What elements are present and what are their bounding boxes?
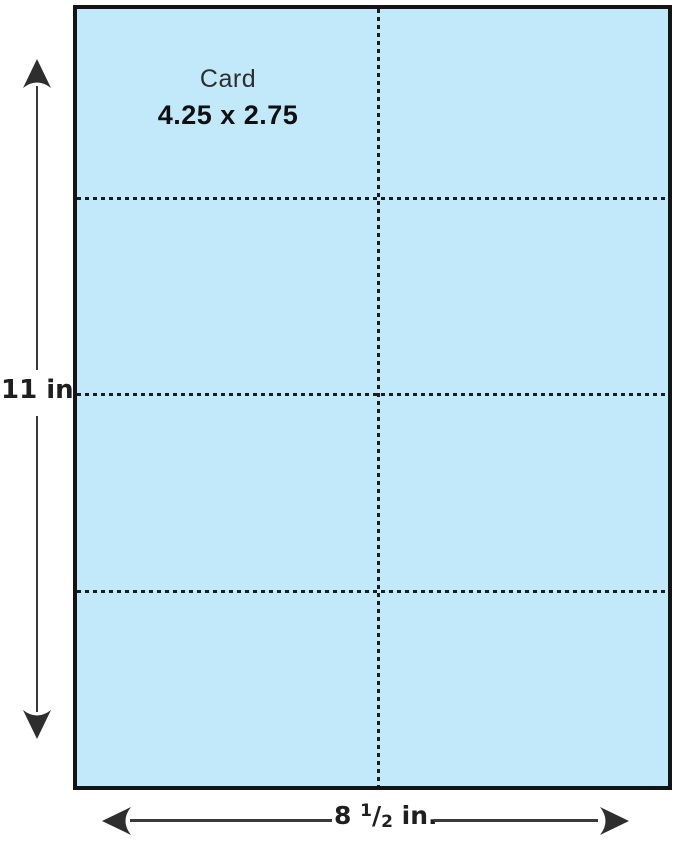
paper-sheet: Card 4.25 x 2.75 [73,5,672,790]
width-numerator: 1 [360,801,372,821]
arrow-right-icon [598,805,630,837]
width-denominator: 2 [381,812,393,832]
card-label: Card [77,65,379,94]
perforation-line-row-1 [77,197,668,200]
perforation-line-row-3 [77,590,668,593]
height-dimension-line-bottom [36,416,38,712]
width-dimension-line-left [130,819,332,822]
template-diagram: Card 4.25 x 2.75 11 in 8 1/2 in. [0,0,679,841]
arrow-left-icon [101,805,133,837]
width-unit: in. [393,801,438,830]
width-dimension-line-right [434,819,598,822]
height-dimension-line-top [36,86,38,370]
card-size-label: 4.25 x 2.75 [77,100,379,131]
width-slash: / [372,801,381,830]
perforation-line-row-2 [77,393,668,396]
card-label-block: Card 4.25 x 2.75 [77,65,379,131]
height-dimension-label: 11 in [1,375,74,405]
arrow-down-icon [21,708,53,740]
width-whole: 8 [334,801,351,830]
width-dimension-label: 8 1/2 in. [334,801,438,830]
